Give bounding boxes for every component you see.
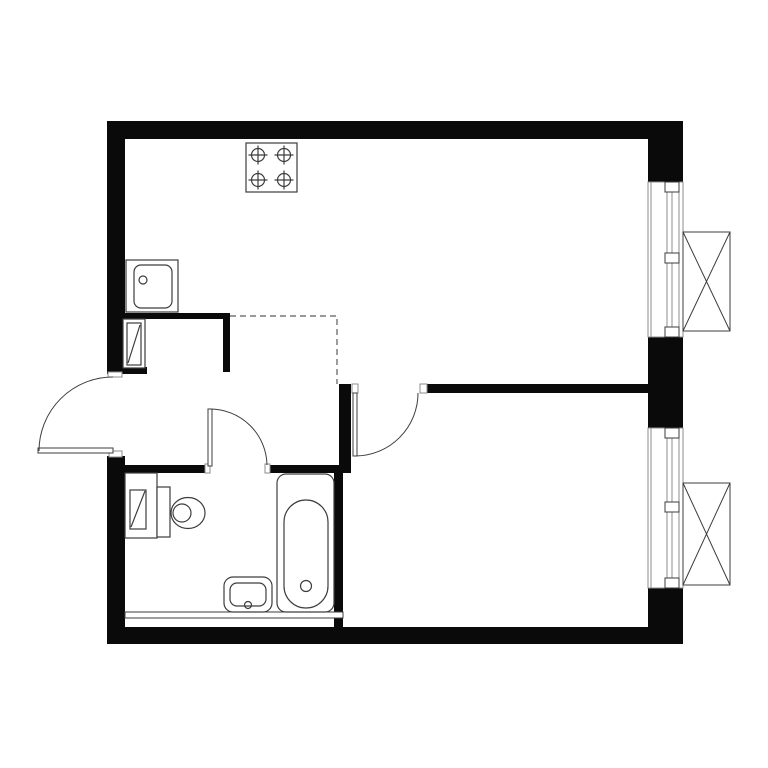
living-bedroom-wall	[427, 384, 648, 393]
bedroom-window-mullion-2	[665, 578, 679, 588]
right-exterior-wall-top	[648, 121, 683, 182]
bedroom-door-jamb-left	[352, 384, 358, 393]
right-exterior-wall-bottom	[648, 588, 683, 644]
bottom-exterior-wall	[107, 627, 683, 644]
bathroom-right-wall	[334, 465, 343, 627]
kitchen-hall-wall	[107, 313, 230, 319]
bathroom-top-wall-right	[270, 465, 340, 473]
right-exterior-wall-mid	[648, 337, 683, 428]
living-room-window-mullion-0	[665, 182, 679, 192]
floor-plan-canvas	[0, 0, 768, 768]
living-room-window-mullion-2	[665, 327, 679, 337]
bedroom-window-mullion-0	[665, 428, 679, 438]
toilet-part-1	[171, 498, 205, 529]
entrance-door-jamb-top	[108, 372, 122, 377]
bathroom-door-jamb-right	[265, 464, 270, 473]
living-room-window-mullion-1	[665, 253, 679, 263]
bathroom-bottom-partition	[125, 612, 343, 618]
bathroom-door-leaf	[208, 409, 212, 466]
left-exterior-wall-upper	[107, 121, 125, 374]
bedroom-door-jamb-right	[420, 384, 427, 393]
bedroom-window-mullion-1	[665, 502, 679, 512]
bedroom-door-leaf	[353, 393, 357, 456]
top-exterior-wall	[107, 121, 683, 139]
floor-plan-svg	[0, 0, 768, 768]
left-exterior-wall-lower	[107, 456, 125, 643]
washbasin	[224, 577, 272, 612]
hall-stub-wall	[223, 318, 230, 372]
hall-bedroom-divider	[339, 384, 351, 473]
entrance-door-leaf	[38, 448, 113, 453]
toilet	[157, 487, 170, 537]
bathroom-top-wall-left	[125, 465, 205, 473]
